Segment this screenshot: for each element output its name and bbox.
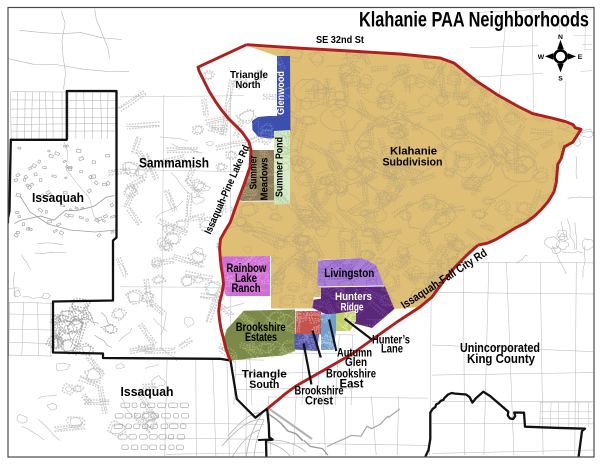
svg-text:S: S (558, 76, 563, 83)
svg-text:King County: King County (467, 352, 535, 366)
svg-text:Glenwood: Glenwood (276, 71, 287, 115)
svg-text:Ranch: Ranch (232, 283, 261, 295)
svg-text:E: E (578, 54, 583, 61)
svg-text:Lane: Lane (381, 344, 403, 356)
svg-text:Subdivision: Subdivision (383, 157, 443, 169)
svg-text:South: South (249, 379, 279, 391)
svg-text:N: N (558, 34, 563, 41)
svg-text:Crest: Crest (305, 396, 333, 408)
svg-text:Sammamish: Sammamish (139, 155, 209, 171)
svg-text:North: North (236, 79, 261, 91)
svg-text:Issaquah: Issaquah (32, 190, 84, 205)
svg-text:W: W (538, 54, 545, 61)
svg-text:Ridge: Ridge (341, 302, 364, 314)
svg-text:Glen: Glen (345, 357, 367, 369)
svg-text:Meadows: Meadows (258, 157, 270, 200)
svg-text:Livingston: Livingston (324, 268, 374, 280)
svg-text:Summer Pond: Summer Pond (274, 137, 286, 197)
svg-text:Issaquah: Issaquah (121, 384, 174, 399)
svg-text:Klahanie PAA Neighborhoods: Klahanie PAA Neighborhoods (359, 9, 589, 32)
svg-text:SE 32nd St: SE 32nd St (316, 34, 364, 46)
svg-text:Estates: Estates (245, 332, 277, 344)
